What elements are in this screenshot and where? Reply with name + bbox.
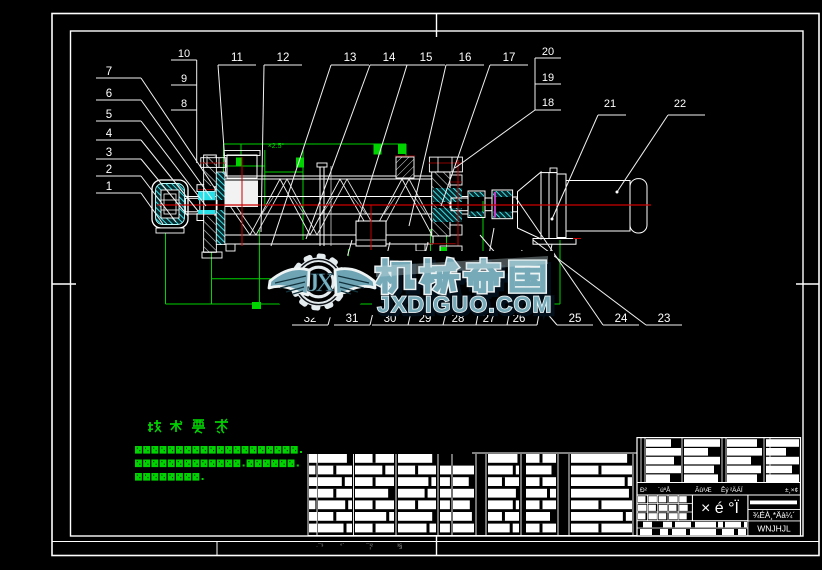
svg-text:Ð²: Ð² [640, 487, 648, 494]
svg-text:7: 7 [106, 66, 112, 78]
svg-text:1: 1 [106, 181, 112, 193]
svg-text:Êý: Êý [721, 485, 729, 494]
svg-text:±¸×¢: ±¸×¢ [785, 487, 799, 494]
svg-text:19: 19 [542, 72, 554, 84]
svg-text:¯¦²: ¯¦² [365, 543, 373, 550]
svg-text:20: 20 [542, 46, 554, 58]
svg-text:JXDIGUO.COM: JXDIGUO.COM [377, 292, 552, 317]
svg-text:31: 31 [346, 313, 359, 325]
svg-text:5: 5 [106, 109, 112, 121]
svg-text:21: 21 [604, 98, 616, 110]
svg-text:³§: ³§ [397, 544, 402, 550]
svg-text:·¯³: ·¯³ [316, 543, 323, 550]
svg-text:3: 3 [106, 147, 112, 159]
svg-text:23: 23 [658, 313, 671, 325]
svg-text:²ÄÁÏ: ²ÄÁÏ [730, 485, 743, 494]
svg-text:22: 22 [674, 98, 686, 110]
svg-text:× é °Ï: × é °Ï [701, 499, 740, 517]
svg-text:24: 24 [615, 313, 628, 325]
svg-text:25: 25 [569, 313, 582, 325]
svg-text:Ãû³Æ: Ãû³Æ [695, 485, 712, 494]
svg-text:9: 9 [181, 73, 187, 85]
svg-text:16: 16 [459, 52, 472, 64]
svg-text:¾ÉÀ¸*Äà¼´: ¾ÉÀ¸*Äà¼´ [753, 511, 795, 520]
svg-text:12: 12 [277, 52, 290, 64]
svg-text:13: 13 [344, 52, 357, 64]
svg-text:15: 15 [420, 52, 433, 64]
svg-text:8: 8 [181, 98, 187, 110]
svg-text:4: 4 [106, 128, 113, 140]
svg-text:6: 6 [106, 88, 112, 100]
svg-text:14: 14 [383, 52, 396, 64]
svg-text:2: 2 [106, 164, 112, 176]
svg-text:17: 17 [503, 52, 516, 64]
svg-text:´úºÅ: ´úºÅ [658, 485, 671, 494]
svg-text:10: 10 [178, 48, 190, 60]
svg-text:11: 11 [231, 52, 243, 64]
svg-text:WNJHJL: WNJHJL [757, 524, 791, 534]
svg-text:°´: °´ [340, 544, 344, 550]
svg-text:×2.5°: ×2.5° [268, 142, 285, 150]
svg-text:18: 18 [542, 97, 554, 109]
